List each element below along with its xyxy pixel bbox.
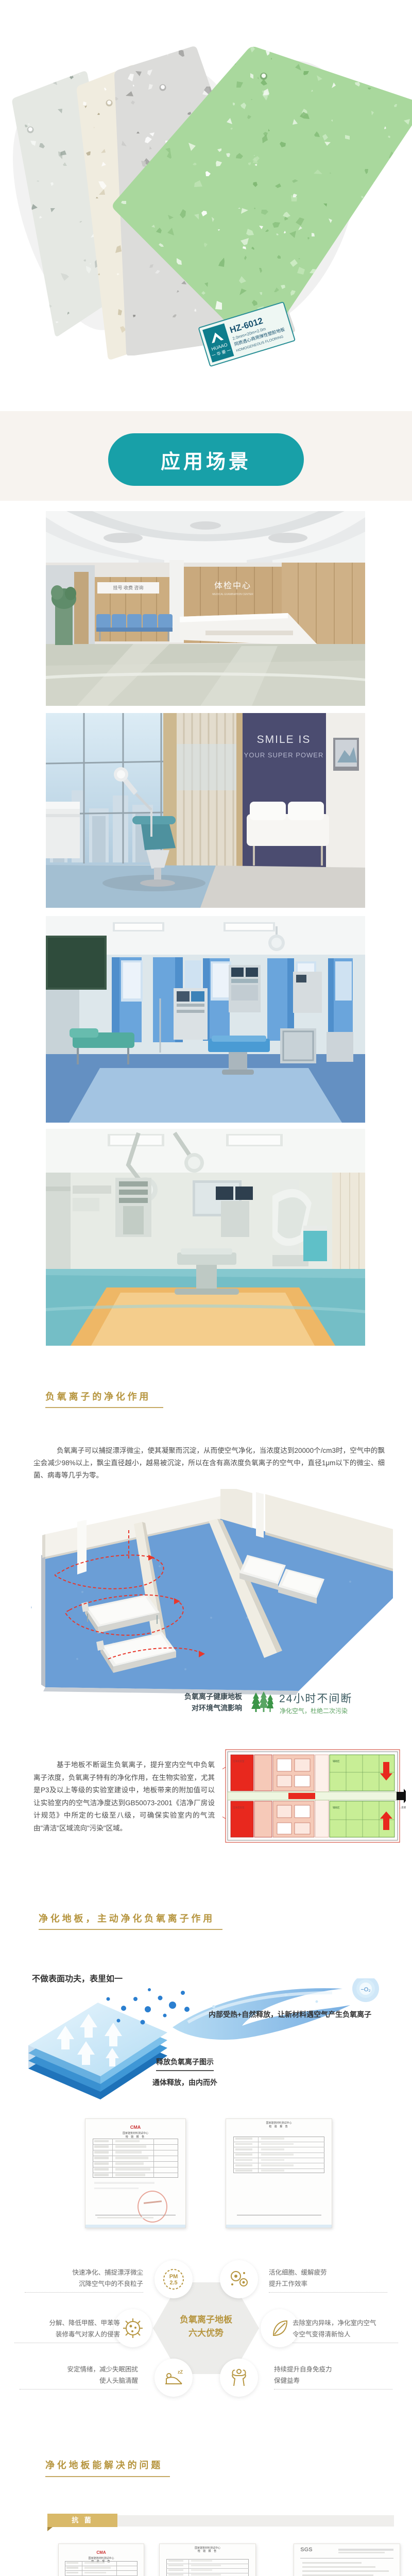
svg-text:2.5: 2.5 (169, 2280, 177, 2286)
svg-text:洁净实验室: 洁净实验室 (233, 1806, 245, 1809)
svg-text:挂号 收费 咨询: 挂号 收费 咨询 (113, 585, 143, 590)
svg-text:SMILE IS: SMILE IS (257, 734, 311, 745)
svg-text:辅助区: 辅助区 (333, 1806, 340, 1809)
svg-text:洁净实验室: 洁净实验室 (233, 1759, 245, 1763)
svg-text:YOUR SUPER POWER: YOUR SUPER POWER (244, 751, 324, 759)
svg-text:PM: PM (169, 2274, 178, 2280)
svg-text:体检中心: 体检中心 (214, 581, 251, 590)
svg-text:zZ: zZ (178, 2369, 183, 2375)
svg-text:辅助区: 辅助区 (333, 1759, 340, 1763)
svg-text:O₂: O₂ (245, 1988, 253, 1996)
svg-text:−O₂: −O₂ (360, 1987, 370, 1993)
svg-text:→走廊: →走廊 (399, 1806, 406, 1809)
svg-text:MEDICAL EXAMINATION CENTER: MEDICAL EXAMINATION CENTER (212, 593, 253, 596)
